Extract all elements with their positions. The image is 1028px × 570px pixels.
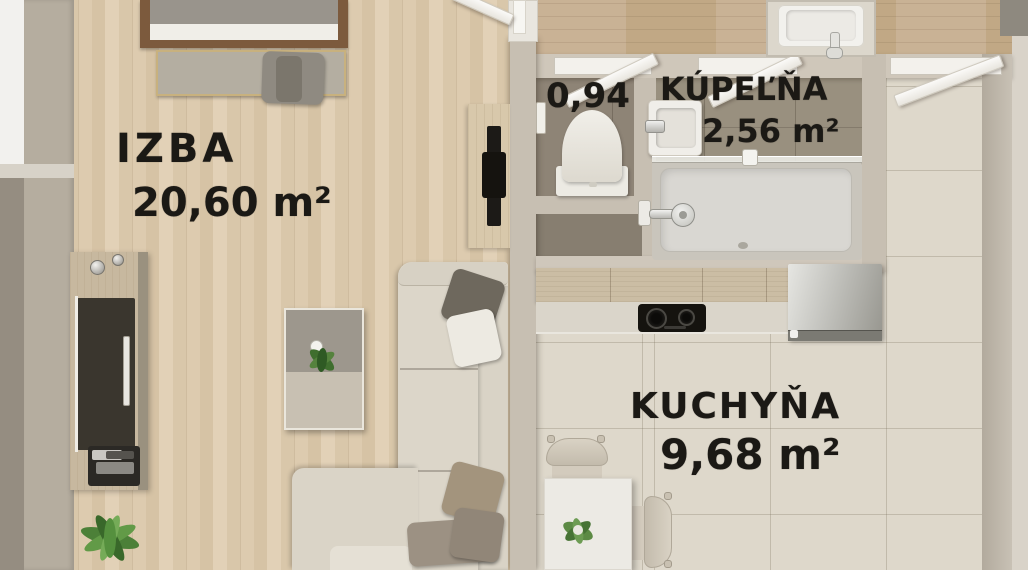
center-partition-wall xyxy=(510,38,536,570)
fridge-handle xyxy=(790,330,798,338)
room-area-kupelna: 2,56 m² xyxy=(702,112,839,150)
room-area-wc: 0,94 xyxy=(546,76,630,116)
fridge-base xyxy=(788,330,882,341)
right-outside-strip xyxy=(1012,0,1028,570)
table-plant-icon xyxy=(554,508,602,554)
corridor-basin-faucet-head xyxy=(826,47,843,59)
cabinet-seam xyxy=(610,268,611,302)
fridge xyxy=(788,264,882,340)
storage-niche-floor xyxy=(536,214,650,256)
sofa-pillow xyxy=(445,308,503,369)
window-sill xyxy=(0,164,74,178)
room-label-izba: IZBA xyxy=(116,126,237,172)
bathroom-right-wall xyxy=(862,54,886,272)
cabinet-seam xyxy=(702,268,703,302)
room-label-kupelna: KÚPEĽŇA xyxy=(660,70,827,108)
storage-box-item xyxy=(96,462,134,474)
room-area-izba: 20,60 m² xyxy=(132,180,332,226)
blanket-fold xyxy=(276,56,302,102)
room-area-kuchyna: 9,68 m² xyxy=(660,430,840,479)
sofa-seam xyxy=(400,368,478,370)
kitchen-counter-cabinets xyxy=(536,268,790,302)
left-window xyxy=(0,0,24,168)
floor-plant-icon xyxy=(60,502,160,570)
storage-box-item xyxy=(106,451,134,459)
chair-post xyxy=(597,435,605,443)
toilet-flush-button xyxy=(589,182,597,187)
washbasin-faucet xyxy=(645,120,665,133)
right-exterior-wall xyxy=(982,54,1012,570)
cooktop-burner xyxy=(678,309,695,326)
sofa-pillow xyxy=(449,507,505,563)
room-label-kuchyna: KUCHYŇA xyxy=(630,386,841,427)
tv-base xyxy=(482,152,506,198)
shower-drain xyxy=(738,242,748,249)
dining-chair-back xyxy=(644,496,672,568)
shower-head-center xyxy=(679,211,687,219)
wardrobe-edge-trim xyxy=(75,296,78,452)
living-room-door-leaf xyxy=(513,0,526,34)
bed-sheet xyxy=(150,24,338,40)
decor-object xyxy=(112,254,124,266)
top-right-corner-shadow xyxy=(1000,0,1028,36)
floor-plan: IZBA 20,60 m² 0,94 KÚPEĽŇA 2,56 m² KUCHY… xyxy=(0,0,1028,570)
wardrobe-handle xyxy=(123,336,130,406)
chair-post xyxy=(547,435,555,443)
cabinet-seam xyxy=(766,268,767,302)
wc-wall-handle xyxy=(536,102,546,134)
coffee-table-plant-icon xyxy=(300,332,344,382)
left-window-lower xyxy=(0,168,24,570)
shower-glass-handle xyxy=(742,149,758,166)
cooktop-controls xyxy=(664,326,686,329)
decor-object xyxy=(90,260,105,275)
left-exterior-wall xyxy=(24,0,74,570)
chair-post xyxy=(664,560,672,568)
sofa-chaise-cushion xyxy=(330,546,412,570)
corridor-basin-bowl xyxy=(786,10,856,41)
chair-post xyxy=(664,492,672,500)
bed-blanket xyxy=(150,0,338,25)
